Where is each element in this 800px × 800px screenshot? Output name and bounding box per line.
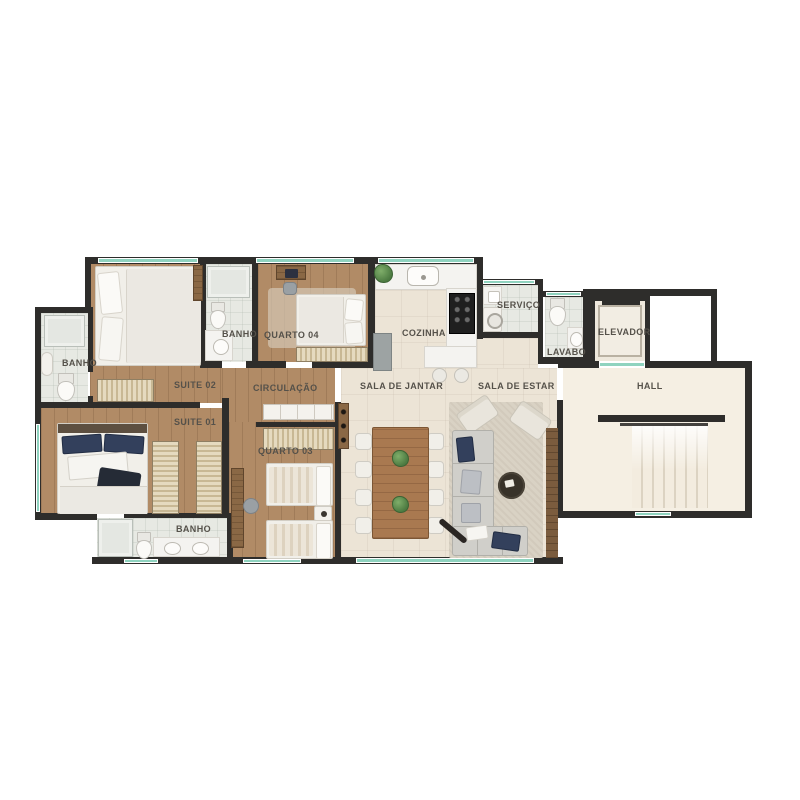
stair-wall — [598, 415, 725, 422]
dining-chair — [427, 461, 444, 478]
toilet — [548, 298, 565, 325]
dining-chair — [355, 489, 372, 506]
quarto-04-wardrobe — [296, 347, 368, 362]
window — [378, 258, 474, 263]
window — [546, 292, 581, 296]
tv-panel — [546, 428, 558, 558]
room-label-hall: HALL — [637, 381, 663, 391]
table-plant — [392, 450, 409, 467]
plant — [374, 264, 393, 283]
lavabo-sink — [567, 327, 583, 349]
dining-chair — [355, 461, 372, 478]
room-label-sala-de-estar: SALA DE ESTAR — [478, 381, 555, 391]
dining-chair — [355, 433, 372, 450]
room-label-banho-suite-01: BANHO — [176, 524, 211, 534]
window — [124, 559, 158, 563]
window — [243, 559, 301, 563]
wall — [85, 257, 91, 313]
quarto-04-chair — [283, 282, 297, 295]
shower — [207, 266, 250, 298]
wall — [477, 332, 543, 338]
suite-01-bed — [57, 423, 148, 514]
suite-02-nightstand — [193, 265, 203, 301]
wall — [645, 361, 750, 368]
dining-table — [372, 427, 429, 539]
room-label-banho-left: BANHO — [62, 358, 97, 368]
window — [256, 258, 354, 263]
window — [356, 558, 534, 563]
room-label-cozinha: COZINHA — [402, 328, 446, 338]
suite-01-wardrobe — [196, 441, 222, 514]
wall — [252, 257, 258, 368]
suite-02-wardrobe — [97, 379, 154, 402]
stair-railing — [620, 423, 708, 426]
toilet — [56, 373, 74, 400]
room-label-suite-01: SUITE 01 — [174, 417, 216, 427]
quarto-03-bed — [266, 520, 333, 559]
quarto-03-bed — [266, 463, 333, 506]
sofa-pillow — [456, 436, 476, 463]
room-label-suite-02: SUITE 02 — [174, 380, 216, 390]
wall — [711, 289, 717, 368]
quarto-03-chair — [243, 498, 259, 514]
coffee-table — [498, 472, 525, 499]
room-label-sala-de-jantar: SALA DE JANTAR — [360, 381, 443, 391]
bathroom-sink — [41, 352, 53, 376]
quarto-03-desk — [231, 468, 244, 548]
washing-machine — [483, 307, 502, 332]
wall — [538, 279, 543, 364]
room-label-quarto-03: QUARTO 03 — [258, 446, 313, 456]
wall — [35, 513, 97, 520]
wall — [88, 396, 93, 406]
dining-chair — [427, 433, 444, 450]
room-label-circulacao: CIRCULAÇÃO — [253, 383, 318, 393]
room-label-banho-suite-02: BANHO — [222, 329, 257, 339]
refrigerator — [373, 333, 392, 371]
suite-02-bed — [95, 266, 201, 366]
floor-plan: BANHO SUITE 02 BANHO QUARTO 04 COZINHA S… — [0, 0, 800, 800]
nightstand — [314, 506, 332, 521]
elevator-shaft-wall — [590, 296, 595, 362]
wall — [222, 398, 229, 513]
dining-chair — [427, 489, 444, 506]
dining-chair — [355, 517, 372, 534]
kitchen-counter-bottom — [424, 346, 477, 368]
wall — [35, 307, 91, 313]
sofa-pillow — [460, 469, 482, 495]
table-plant — [392, 496, 409, 513]
stove — [449, 293, 475, 334]
quarto-03-closet — [263, 404, 334, 420]
shower — [44, 315, 85, 347]
wall — [745, 361, 752, 518]
wall — [256, 422, 340, 427]
double-vanity — [153, 537, 220, 557]
room-label-elevador: ELEVADOR — [598, 327, 651, 337]
dining-console — [338, 403, 349, 449]
window — [635, 512, 671, 516]
quarto-04-desk — [276, 265, 306, 280]
window — [98, 258, 198, 263]
room-label-lavabo: LAVABO — [547, 347, 586, 357]
staircase — [632, 424, 708, 508]
toilet — [209, 302, 225, 327]
wall — [586, 289, 717, 296]
wall — [38, 402, 200, 408]
room-label-quarto-04: QUARTO 04 — [264, 330, 319, 340]
room-label-servico: SERVIÇO — [497, 300, 540, 310]
sofa-pillow — [461, 503, 481, 523]
elevator-threshold — [599, 362, 645, 367]
bar-stool — [454, 368, 469, 383]
suite-01-wardrobe — [152, 441, 179, 514]
window — [36, 424, 40, 512]
elevator-door — [602, 301, 640, 305]
shower — [98, 519, 133, 557]
toilet — [135, 532, 151, 557]
kitchen-sink — [407, 266, 439, 286]
living-floor-upper — [477, 338, 538, 368]
window — [483, 280, 535, 284]
